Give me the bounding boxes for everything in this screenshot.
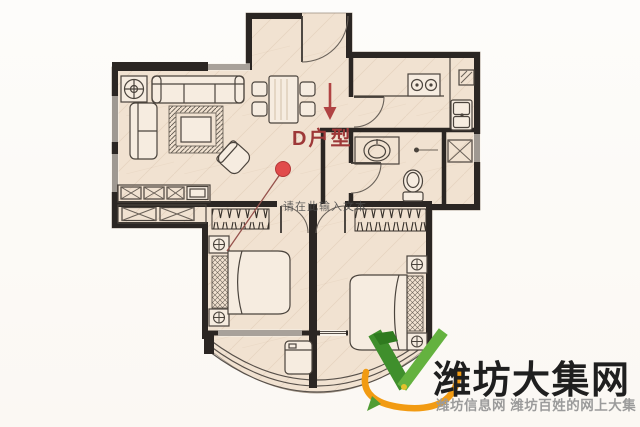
- floor-plan-image: D户型 请在此输入文本 潍坊大集网 潍坊信息网 潍坊百姓的网上大集: [0, 0, 640, 427]
- bedroom-right-furniture: [350, 209, 427, 350]
- potted-plant: [121, 76, 147, 102]
- dining-table: [269, 76, 298, 123]
- stove: [408, 74, 440, 96]
- sliding-window-bedroom-right: [320, 330, 346, 336]
- nightstand-lamp: [407, 256, 427, 273]
- nightstand-lamp: [209, 236, 229, 253]
- corner-sofa: [130, 103, 157, 159]
- washing-machine: [285, 341, 312, 374]
- dining-chair: [252, 82, 267, 96]
- toilet: [403, 170, 423, 201]
- window-right: [474, 134, 481, 162]
- placeholder-watermark-text: 请在此输入文本: [283, 198, 367, 214]
- window-left-1: [112, 96, 119, 142]
- coffee-table: [181, 117, 211, 142]
- dining-chair: [252, 102, 267, 116]
- logo-subtitle: 潍坊信息网 潍坊百姓的网上大集: [436, 394, 636, 414]
- sofa: [152, 76, 244, 103]
- pillows: [212, 256, 228, 308]
- tv: [187, 187, 208, 200]
- dining-chair: [300, 102, 315, 116]
- nightstand-lamp: [407, 333, 427, 350]
- nightstand-lamp: [209, 309, 229, 326]
- unit-type-label: D户型: [292, 122, 352, 151]
- window-top: [208, 64, 250, 71]
- pillows: [407, 276, 423, 331]
- tv-cabinet: [118, 185, 210, 202]
- double-bed: [228, 251, 290, 314]
- dining-chair: [300, 82, 315, 96]
- kitchen-sink: [451, 100, 472, 130]
- wardrobe: [212, 209, 269, 229]
- sliding-window-bedroom-left: [218, 330, 302, 337]
